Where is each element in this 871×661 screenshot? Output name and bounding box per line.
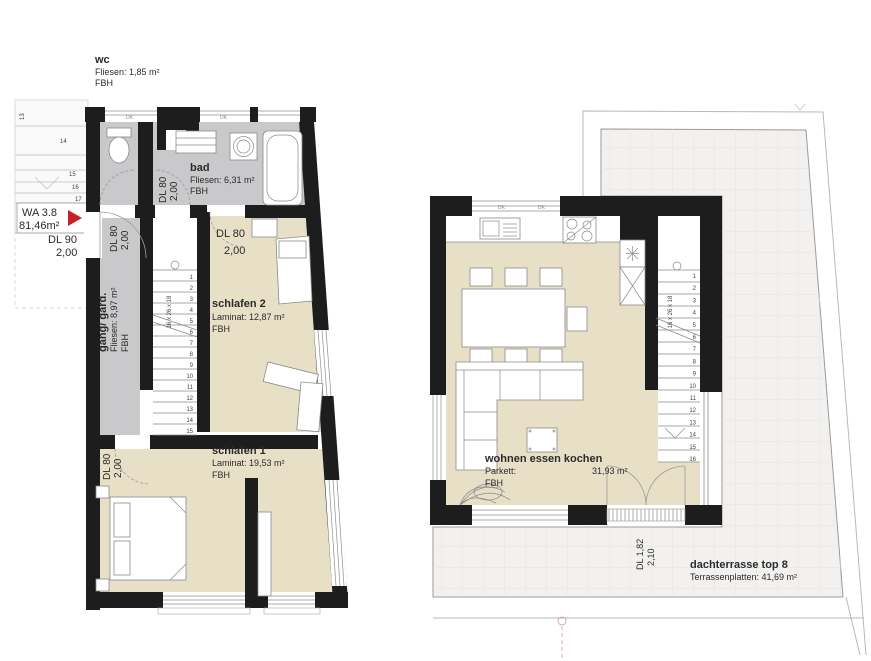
stair-step-number: 7 (190, 341, 194, 347)
stair-step-number: 12 (689, 408, 696, 414)
stair-step-number: 11 (690, 396, 697, 402)
roof-edge-right (846, 597, 860, 655)
wall-wc-bad (138, 120, 153, 205)
kitchen-column (620, 216, 645, 240)
terrace-door-height: 2,10 (646, 548, 656, 566)
door-label-schlafen2: DL 80 (216, 228, 245, 240)
wohnen-heating: FBH (485, 478, 503, 488)
wall-gang-stairs (140, 218, 153, 390)
stair-step-number: 14 (689, 433, 696, 439)
upper-wall-bottom-2 (568, 505, 607, 525)
bad-floor-label: Fliesen: 6,31 m² (190, 175, 255, 185)
upper-wall-right (700, 196, 722, 392)
schlafen2-name: schlafen 2 (212, 298, 266, 310)
schlafen2-floor-label: Laminat: 12,87 m² (212, 312, 285, 322)
door-height-wc: 2,00 (120, 230, 131, 250)
door-height-bad: 2,00 (169, 181, 180, 201)
upper-wall-bottom-3 (685, 505, 722, 525)
wohnen-floor-type: Parkett: (485, 466, 516, 476)
schlafen1-name: schlafen 1 (212, 445, 266, 457)
fridge (620, 267, 645, 305)
wc-toilet (107, 128, 131, 163)
ext-step: 14 (60, 139, 67, 145)
kitchen-sink (480, 218, 520, 239)
wall-d1 (135, 205, 155, 218)
window-label: DK (538, 205, 546, 211)
stair-step-number: 10 (186, 374, 193, 380)
roof-tick (795, 104, 805, 110)
wall-stairs-schlafen2 (197, 212, 210, 432)
lower-window-bottom-1 (158, 592, 250, 614)
window-label: DK (126, 115, 134, 121)
stair-step-number: 15 (689, 445, 696, 451)
stair-step-number: 5 (190, 319, 194, 325)
gang-heating: FBH (120, 334, 130, 352)
wall-g-stub (97, 435, 115, 449)
washing-machine (230, 133, 257, 160)
bad-sink (176, 131, 216, 153)
door-height-schlafen2: 2,00 (224, 245, 245, 257)
window-label: DK (220, 115, 228, 121)
stair-step-number: 13 (689, 420, 696, 426)
wohnen-name: wohnen essen kochen (484, 453, 603, 465)
stair-step-number: 2 (190, 286, 194, 292)
lower-window-top-2: DK (200, 107, 250, 122)
wall-closet (245, 478, 258, 598)
bathtub (263, 131, 302, 205)
chair (470, 268, 492, 286)
upper-stair-dim: 16 x 26 x 18 (668, 295, 674, 328)
upper-window-left (428, 395, 446, 480)
stair-step-number: 15 (186, 429, 193, 435)
bad-heating: FBH (190, 186, 208, 196)
stair-step-number: 16 (689, 457, 696, 463)
terrace-name: dachterrasse top 8 (690, 559, 788, 571)
bad-name: bad (190, 162, 210, 174)
lower-wall-left-1 (86, 107, 100, 212)
chair (505, 268, 527, 286)
door-height-schlafen1: 2,00 (113, 458, 124, 478)
upper-plan: DK DK (428, 196, 722, 570)
freezer (620, 240, 645, 267)
stair-step-number: 4 (190, 308, 194, 314)
wall-d3 (245, 205, 307, 218)
wc-name: wc (94, 54, 110, 66)
terrace-door-threshold (607, 509, 685, 521)
stair-step-number: 14 (186, 418, 193, 424)
stair-step-number: 1 (190, 275, 194, 281)
stair-step-number: 10 (689, 384, 696, 390)
lower-plan: 13 14 15 16 17 WA 3.8 81,46m² DL 90 2,00 (15, 54, 348, 614)
door-label-schlafen1: DL 80 (102, 453, 113, 480)
stair-step-number: 8 (190, 352, 194, 358)
stair-step-number: 11 (187, 385, 194, 391)
floorplan-page: dachterrasse top 8 Terrassenplatten: 41,… (0, 0, 871, 661)
wc-label: wc Fliesen: 1,85 m² FBH (94, 54, 160, 88)
lower-stair-numbers: 123456789101112131415 (186, 275, 193, 435)
stair-step-number: 13 (186, 407, 193, 413)
gang-floor-label: Fliesen: 8,97 m² (109, 287, 119, 352)
gang-name: gang/ gard. (97, 293, 109, 352)
unit-area: 81,46m² (19, 220, 60, 232)
unit-id: WA 3.8 (22, 207, 57, 219)
entry-door-label: DL 90 (48, 234, 77, 246)
cooktop (563, 217, 596, 243)
lower-stair-dim: 16 x 26 x 18 (167, 295, 173, 328)
entry-opening (84, 212, 102, 258)
floorplan-canvas: dachterrasse top 8 Terrassenplatten: 41,… (0, 0, 871, 661)
lower-window-bottom-2 (264, 592, 320, 614)
entry-door-height: 2,00 (56, 247, 77, 259)
upper-window-bottom (472, 505, 568, 525)
dining-table (462, 289, 565, 347)
lower-stairs: 123456789101112131415 16 x 26 x 18 (153, 261, 197, 435)
ext-step: 15 (69, 172, 76, 178)
lower-window-top-3 (258, 107, 300, 122)
upper-window-top: DK DK (472, 196, 560, 216)
window-label: DK (498, 205, 506, 211)
schlafen1-heating: FBH (212, 470, 230, 480)
ext-step: 16 (72, 185, 79, 191)
ext-step: 17 (75, 197, 82, 203)
schlafen2-heating: FBH (212, 324, 230, 334)
upper-wall-bottom-1 (430, 505, 472, 525)
coffee-table (527, 428, 557, 452)
wohnen-area: 31,93 m² (592, 466, 628, 476)
terrace-floor-label: Terrassenplatten: 41,69 m² (690, 572, 797, 582)
stair-step-number: 3 (190, 297, 194, 303)
terrace-door-label: DL 1,82 (635, 539, 645, 570)
stair-step-number: 9 (190, 363, 194, 369)
wc-floor-label: Fliesen: 1,85 m² (95, 67, 160, 77)
lower-window-top-1: DK (105, 107, 157, 122)
chair (567, 307, 587, 331)
ext-step: 13 (20, 113, 26, 120)
upper-stairs-wall (645, 216, 658, 390)
stair-step-number: 12 (186, 396, 193, 402)
door-label-wc: DL 80 (109, 225, 120, 252)
door-label-bad: DL 80 (158, 176, 169, 203)
wc-heating: FBH (95, 78, 113, 88)
chair (540, 268, 562, 286)
stair-step-number: 6 (190, 330, 194, 336)
schlafen1-wardrobe (258, 512, 271, 596)
schlafen1-floor-label: Laminat: 19,53 m² (212, 458, 285, 468)
